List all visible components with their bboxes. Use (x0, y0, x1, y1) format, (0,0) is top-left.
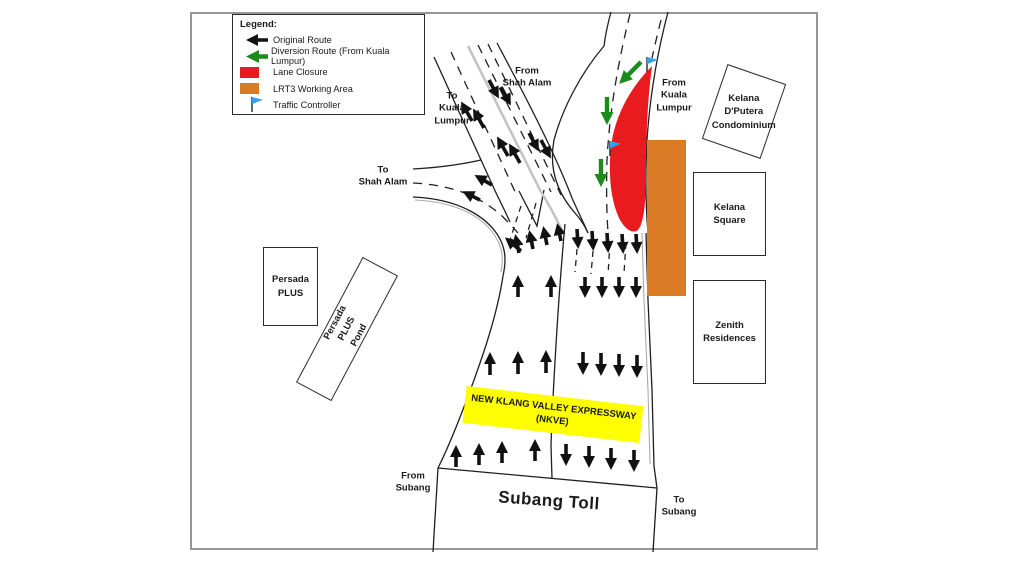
lrt3-swatch-icon (240, 83, 273, 94)
label-from-shah-alam: From Shah Alam (503, 66, 552, 91)
legend-title: Legend: (240, 19, 417, 30)
building-persada-plus: Persada PLUS (263, 247, 318, 326)
label-to-kuala-lumpur: To Kuala Lumpur (434, 90, 469, 127)
lane-closure-area (610, 66, 652, 232)
label-to-subang: To Subang (662, 495, 697, 520)
legend-box: Legend: Original Route Diversion Route (… (232, 14, 425, 115)
black-arrow-icon (240, 34, 273, 46)
legend-item-lane-closure: Lane Closure (240, 64, 417, 80)
traffic-diversion-diagram: Legend: Original Route Diversion Route (… (0, 0, 1024, 576)
building-zenith-residences: Zenith Residences (693, 280, 766, 384)
legend-item-traffic-controller: Traffic Controller (240, 97, 417, 113)
lrt3-working-area (647, 140, 686, 296)
lane-closure-swatch-icon (240, 67, 273, 78)
building-kelana-square: Kelana Square (693, 172, 766, 256)
label-to-shah-alam: To Shah Alam (359, 165, 408, 190)
legend-item-lrt3-area: LRT3 Working Area (240, 81, 417, 97)
traffic-flag-icon (240, 96, 273, 114)
green-arrow-icon (240, 50, 271, 63)
label-from-subang: From Subang (396, 471, 431, 496)
legend-item-diversion-route: Diversion Route (From Kuala Lumpur) (240, 48, 417, 64)
label-from-kuala-lumpur: From Kuala Lumpur (656, 77, 691, 114)
